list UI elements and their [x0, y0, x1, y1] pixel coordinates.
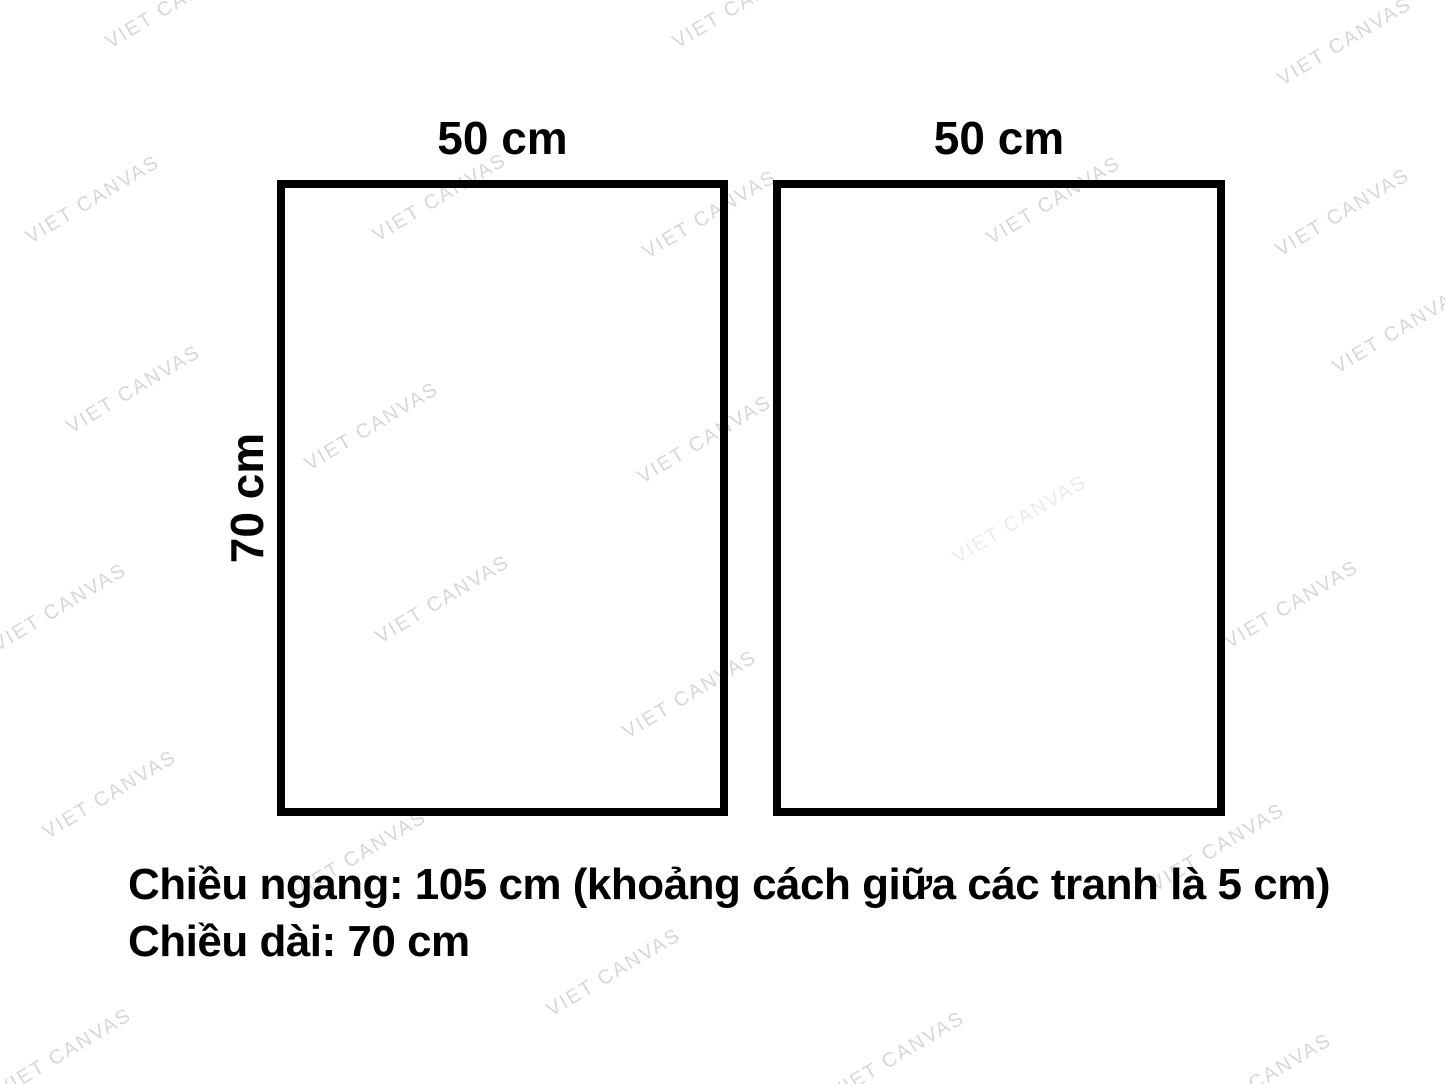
caption-total-width: Chiều ngang: 105 cm (khoảng cách giữa cá… [128, 856, 1330, 913]
watermark-text: VIET CANVAS [102, 0, 244, 54]
panel-right-width-label: 50 cm [773, 110, 1225, 166]
watermark-text: VIET CANVAS [827, 1007, 969, 1084]
panel-left-width-label: 50 cm [277, 110, 728, 166]
dimension-diagram: 50 cm 50 cm 70 cm Chiều ngang: 105 cm (k… [0, 0, 1445, 1084]
watermark-text: VIET CANVAS [39, 746, 181, 844]
canvas-panel-right [773, 180, 1225, 816]
watermark-text: VIET CANVAS [1274, 0, 1416, 91]
watermark-text: VIET CANVAS [1194, 1029, 1336, 1084]
watermark-text: VIET CANVAS [1272, 164, 1414, 262]
panel-height-label: 70 cm [220, 433, 274, 563]
caption: Chiều ngang: 105 cm (khoảng cách giữa cá… [128, 856, 1330, 970]
canvas-panel-left [277, 180, 728, 816]
watermark-text: VIET CANVAS [22, 151, 164, 249]
watermark-text: VIET CANVAS [63, 341, 205, 439]
caption-total-height: Chiều dài: 70 cm [128, 913, 1330, 970]
watermark-text: VIET CANVAS [0, 1004, 136, 1084]
watermark-text: VIET CANVAS [1221, 556, 1363, 654]
watermark-text: VIET CANVAS [0, 559, 131, 657]
watermark-text: VIET CANVAS [1329, 281, 1445, 379]
watermark-text: VIET CANVAS [669, 0, 811, 54]
